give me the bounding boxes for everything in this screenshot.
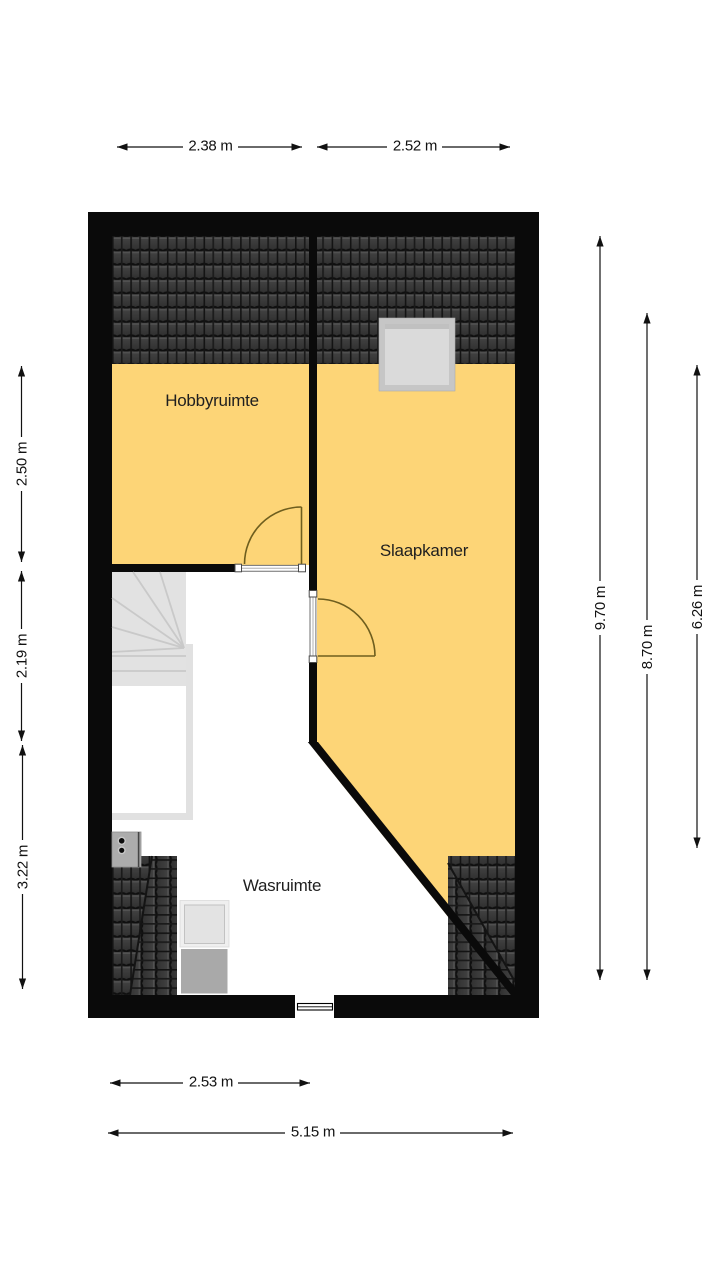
svg-text:Hobbyruimte: Hobbyruimte	[165, 391, 259, 410]
svg-text:3.22 m: 3.22 m	[15, 845, 32, 889]
svg-text:2.52 m: 2.52 m	[393, 138, 437, 155]
svg-text:Wasruimte: Wasruimte	[243, 876, 321, 895]
svg-text:5.15 m: 5.15 m	[291, 1124, 335, 1141]
svg-text:2.50 m: 2.50 m	[14, 442, 31, 486]
svg-text:9.70 m: 9.70 m	[592, 586, 609, 630]
svg-text:2.53 m: 2.53 m	[189, 1074, 233, 1091]
svg-text:Slaapkamer: Slaapkamer	[380, 541, 469, 560]
svg-text:6.26 m: 6.26 m	[689, 585, 706, 629]
svg-text:2.38 m: 2.38 m	[188, 138, 232, 155]
svg-text:8.70 m: 8.70 m	[639, 625, 656, 669]
svg-text:2.19 m: 2.19 m	[14, 634, 31, 678]
